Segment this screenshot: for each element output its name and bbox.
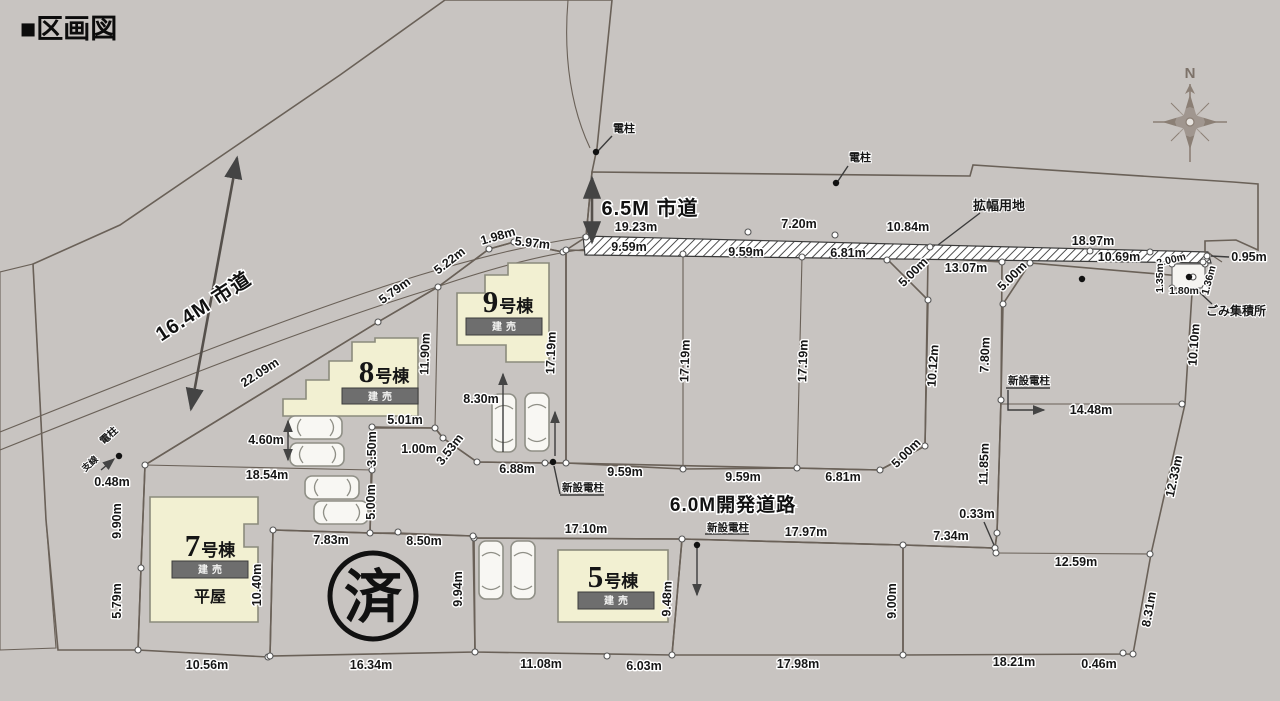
dimension-label: 5.01m	[387, 413, 422, 427]
boundary-point	[583, 234, 589, 240]
boundary-point	[563, 247, 569, 253]
building-suffix: 号棟	[499, 296, 534, 316]
road-name-label: 6.0M開発道路	[670, 493, 796, 516]
boundary-point	[1179, 401, 1185, 407]
boundary-point	[542, 460, 548, 466]
boundary-point	[375, 319, 381, 325]
boundary-point	[994, 530, 1000, 536]
road-name-label: 6.5M 市道	[601, 196, 698, 220]
dimension-label: 4.60m	[248, 433, 283, 447]
dimension-label: 9.00m	[885, 583, 899, 618]
dimension-label: 9.59m	[725, 470, 760, 484]
dimension-label: 17.19m	[677, 339, 692, 382]
dimension-label: 9.59m	[728, 245, 763, 259]
annotation-label: 電柱	[613, 121, 635, 135]
dimension-label: 17.19m	[543, 331, 558, 374]
dimension-label: 17.97m	[785, 525, 827, 539]
dimension-label: 9.94m	[451, 571, 465, 606]
boundary-point	[669, 652, 675, 658]
annotation-label: 新設電柱	[707, 521, 749, 534]
building-suffix: 号棟	[604, 571, 639, 591]
dimension-label: 10.10m	[1186, 323, 1203, 366]
boundary-point	[369, 467, 375, 473]
boundary-point	[138, 565, 144, 571]
dimension-label: 18.97m	[1072, 234, 1114, 248]
dimension-label: 9.59m	[611, 240, 646, 254]
dimension-label: 0.46m	[1081, 657, 1116, 671]
dimension-label: 7.80m	[977, 337, 992, 373]
dimension-label: 18.54m	[246, 468, 288, 482]
annotation-label: 新設電柱	[1008, 374, 1050, 387]
dimension-label: 7.83m	[313, 533, 348, 547]
dimension-label: 11.90m	[417, 333, 432, 375]
dimension-label: 13.07m	[945, 261, 987, 275]
dimension-label: 9.59m	[607, 465, 642, 479]
dimension-label: 6.81m	[830, 246, 865, 260]
dimension-label: 6.03m	[626, 659, 661, 673]
dimension-label: 17.98m	[777, 657, 819, 671]
boundary-point	[832, 232, 838, 238]
for-sale-banner-label: 建売	[603, 594, 632, 607]
boundary-point	[435, 284, 441, 290]
dimension-label: 16.34m	[350, 658, 392, 672]
dimension-label: 9.48m	[659, 581, 674, 617]
dimension-label: 18.21m	[993, 655, 1035, 669]
annotation-label: ごみ集積所	[1206, 303, 1266, 318]
dimension-label: 10.56m	[186, 658, 228, 672]
building-suffix: 号棟	[201, 540, 236, 560]
building-number: 7	[185, 528, 201, 563]
boundary-point	[1130, 651, 1136, 657]
boundary-point	[440, 435, 446, 441]
building-suffix: 号棟	[375, 366, 410, 386]
utility-pole-dot	[593, 149, 599, 155]
dimension-label: 0.48m	[94, 475, 129, 489]
boundary-point	[474, 459, 480, 465]
boundary-point	[794, 465, 800, 471]
dimension-label: 10.12m	[925, 344, 942, 387]
boundary-point	[563, 460, 569, 466]
boundary-point	[1120, 650, 1126, 656]
boundary-point	[884, 257, 890, 263]
building-number: 8	[359, 354, 375, 389]
dimension-label: 11.85m	[976, 443, 991, 485]
dimension-label: 19.23m	[615, 220, 657, 234]
boundary-point	[486, 246, 492, 252]
dimension-label: 7.20m	[781, 217, 816, 231]
annotation-label: 拡幅用地	[973, 198, 1025, 213]
boundary-point	[135, 647, 141, 653]
boundary-point	[900, 542, 906, 548]
annotation-label: 電柱	[849, 150, 871, 164]
dimension-label: 14.48m	[1070, 403, 1112, 417]
boundary-point	[998, 397, 1004, 403]
boundary-point	[604, 653, 610, 659]
boundary-point	[925, 297, 931, 303]
for-sale-banner-label: 建売	[367, 390, 396, 403]
dimension-label: 17.10m	[565, 522, 607, 536]
dimension-label: 1.00m	[401, 442, 436, 456]
boundary-point	[472, 649, 478, 655]
boundary-point	[679, 536, 685, 542]
building-number: 5	[588, 559, 604, 594]
utility-pole-dot	[550, 459, 556, 465]
utility-pole-dot	[1186, 274, 1192, 280]
boundary-point	[432, 425, 438, 431]
dimension-label: 11.08m	[520, 657, 562, 671]
boundary-point	[1000, 301, 1006, 307]
for-sale-banner-label: 建売	[491, 320, 520, 333]
boundary-point	[1204, 253, 1210, 259]
boundary-point	[267, 653, 273, 659]
building-5[interactable]: 5号棟 建売	[558, 550, 668, 622]
boundary-point	[1200, 259, 1206, 265]
utility-pole-dot	[833, 180, 839, 186]
boundary-point	[1147, 551, 1153, 557]
boundary-point	[1087, 248, 1093, 254]
boundary-point	[877, 467, 883, 473]
boundary-point	[927, 244, 933, 250]
plot-map-page: 9号棟 建売 8号棟 建売 7号棟 建売 平屋 5号棟 建売	[0, 0, 1280, 701]
for-sale-banner-label: 建売	[197, 563, 226, 576]
boundary-point	[900, 652, 906, 658]
dimension-label: 10.40m	[250, 564, 264, 606]
utility-pole-dot	[694, 542, 700, 548]
boundary-point	[1027, 260, 1033, 266]
sold-stamp-label: 済	[344, 565, 403, 630]
boundary-point	[680, 466, 686, 472]
boundary-point	[369, 424, 375, 430]
boundary-point	[270, 527, 276, 533]
building-7[interactable]: 7号棟 建売 平屋	[150, 497, 258, 622]
boundary-point	[799, 254, 805, 260]
boundary-point	[142, 462, 148, 468]
boundary-point	[999, 259, 1005, 265]
annotation-label: 新設電柱	[562, 481, 604, 494]
dimension-label: 10.84m	[887, 220, 929, 234]
boundary-point	[745, 229, 751, 235]
boundary-point	[367, 530, 373, 536]
dimension-label: 6.81m	[825, 470, 860, 484]
leader-095	[1211, 256, 1229, 257]
compass-north-label: N	[1185, 65, 1196, 82]
building-number: 9	[483, 284, 499, 319]
page-title: ■区画図	[20, 14, 117, 44]
boundary-point	[1147, 249, 1153, 255]
dimension-label: 8.50m	[406, 534, 441, 548]
dimension-label: 9.90m	[110, 503, 124, 538]
boundary-point	[993, 550, 999, 556]
boundary-point	[470, 533, 476, 539]
dimension-label: 10.69m	[1098, 250, 1140, 264]
dimension-label: 12.59m	[1055, 555, 1097, 569]
boundary-point	[680, 251, 686, 257]
plot-map: 9号棟 建売 8号棟 建売 7号棟 建売 平屋 5号棟 建売	[0, 0, 1280, 701]
dimension-label: 5.00m	[364, 484, 378, 519]
boundary-point	[395, 529, 401, 535]
utility-pole-dot	[1079, 276, 1085, 282]
dimension-label: 1.35m	[1154, 263, 1166, 293]
dimension-label: 0.95m	[1231, 250, 1266, 264]
dimension-label: 0.33m	[959, 507, 994, 521]
dimension-label: 3.50m	[365, 431, 379, 466]
dimension-label: 1.80m	[1169, 285, 1199, 297]
dimension-label: 6.88m	[499, 462, 534, 476]
utility-pole-dot	[116, 453, 122, 459]
dimension-label: 7.34m	[933, 529, 968, 543]
building-note: 平屋	[194, 588, 226, 606]
dimension-label: 8.30m	[463, 392, 498, 406]
dimension-label: 17.19m	[795, 339, 810, 382]
dimension-label: 5.79m	[110, 583, 124, 618]
